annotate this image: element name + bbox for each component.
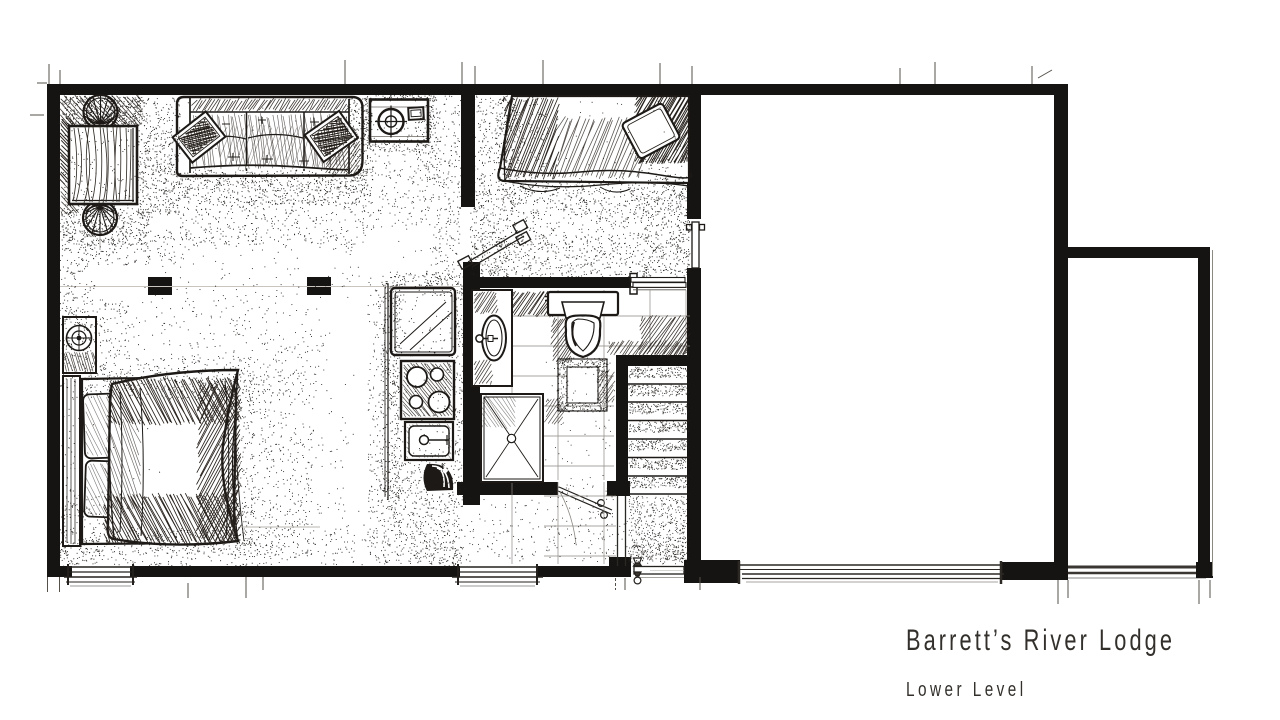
svg-text:Lower Level: Lower Level	[906, 678, 1027, 700]
svg-text:Barrett’s River Lodge: Barrett’s River Lodge	[906, 625, 1175, 657]
